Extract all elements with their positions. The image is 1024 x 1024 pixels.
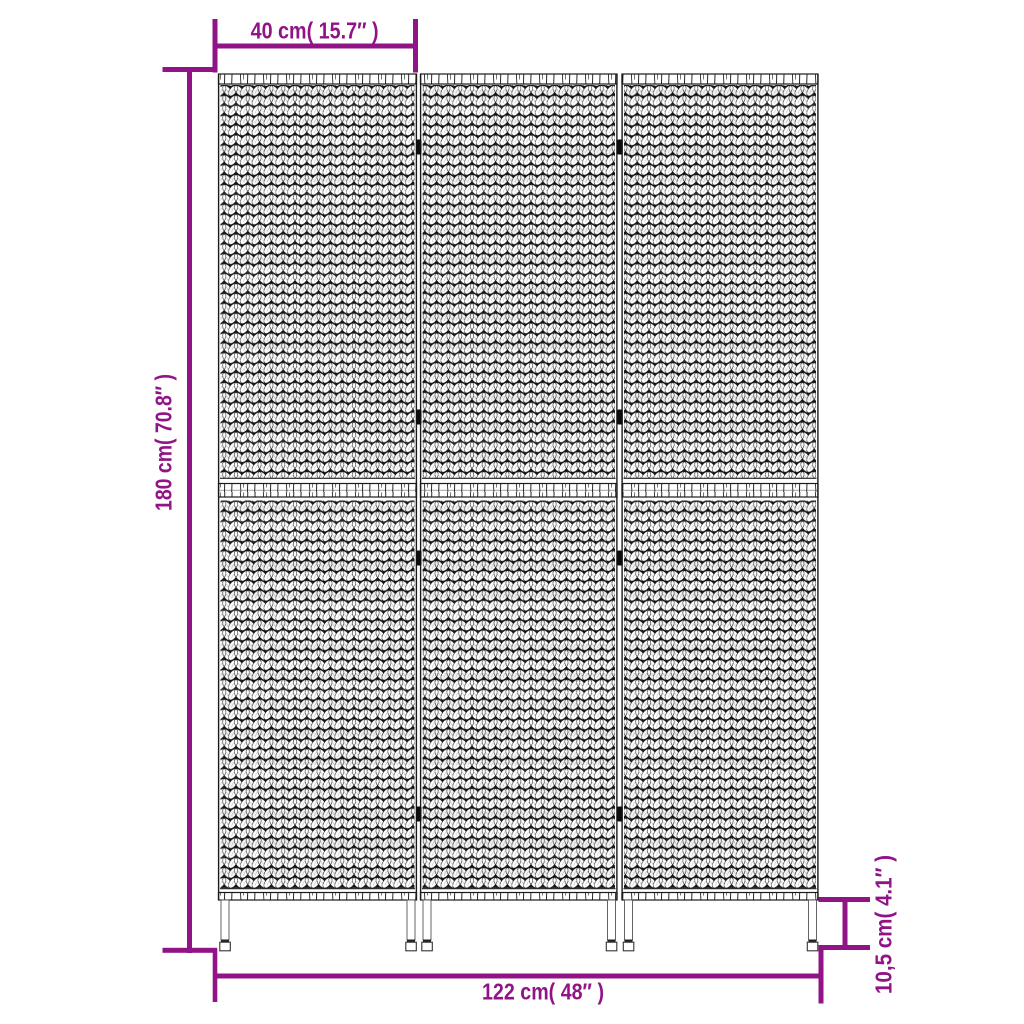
svg-text:180 cm( 70.8″ ): 180 cm( 70.8″ ) (150, 374, 176, 511)
svg-text:40 cm( 15.7″ ): 40 cm( 15.7″ ) (251, 17, 379, 43)
svg-text:122 cm( 48″ ): 122 cm( 48″ ) (482, 978, 604, 1004)
svg-text:10,5 cm( 4.1″ ): 10,5 cm( 4.1″ ) (870, 855, 896, 994)
